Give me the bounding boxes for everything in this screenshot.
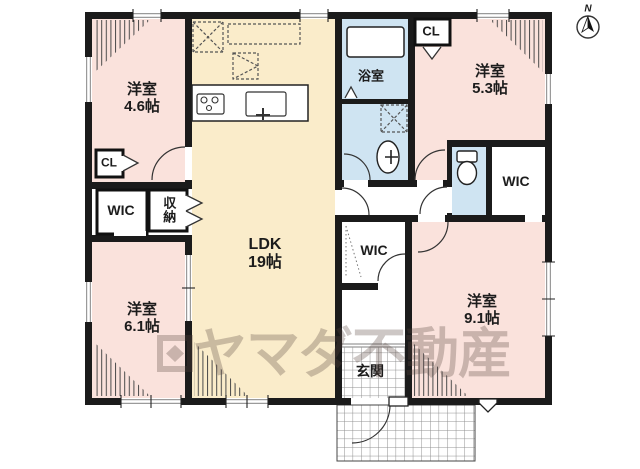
label-room-4-6: 洋室4.6帖	[124, 82, 160, 116]
label-wic-right: WIC	[502, 174, 529, 190]
window-right-room53	[545, 74, 552, 104]
door-ldk-hall	[342, 188, 369, 215]
label-ldk: LDK19帖	[248, 236, 282, 272]
label-closet-2: CL	[422, 25, 439, 40]
toilet	[457, 151, 477, 185]
label-room-9-1: 洋室9.1帖	[464, 294, 500, 328]
washroom-sink	[377, 141, 399, 173]
label-wic-mid: WIC	[360, 243, 387, 259]
label-bath: 浴室	[358, 70, 384, 85]
washroom-floor	[342, 104, 408, 180]
exterior-door-mark	[479, 399, 497, 412]
bathtub	[347, 27, 404, 57]
floor-plan-canvas	[0, 0, 640, 469]
wic-mid-hanger-marks	[346, 226, 361, 278]
porch-tile	[337, 405, 475, 461]
kitchen-sink	[246, 92, 286, 120]
entrance-door-leaf	[389, 397, 408, 406]
label-storage: 収納	[161, 196, 176, 224]
room-5-3-alcove	[415, 140, 447, 180]
watermark-text: ヤマダ不動産	[193, 327, 511, 381]
window-left-room46	[85, 57, 92, 102]
label-compass-north: N	[584, 3, 591, 14]
stove	[197, 94, 224, 114]
label-closet-1: CL	[101, 156, 117, 169]
compass-icon	[577, 16, 599, 38]
wic-left-opening	[114, 231, 146, 236]
label-room-5-3: 洋室5.3帖	[472, 64, 508, 98]
door-toilet	[420, 187, 447, 214]
label-wic-left: WIC	[107, 203, 134, 219]
label-room-6-1: 洋室6.1帖	[124, 302, 160, 336]
floor-plan-page: 洋室4.6帖 洋室5.3帖 洋室6.1帖 洋室9.1帖 LDK19帖 浴室 玄関…	[0, 0, 640, 469]
window-left-room61	[85, 282, 92, 322]
